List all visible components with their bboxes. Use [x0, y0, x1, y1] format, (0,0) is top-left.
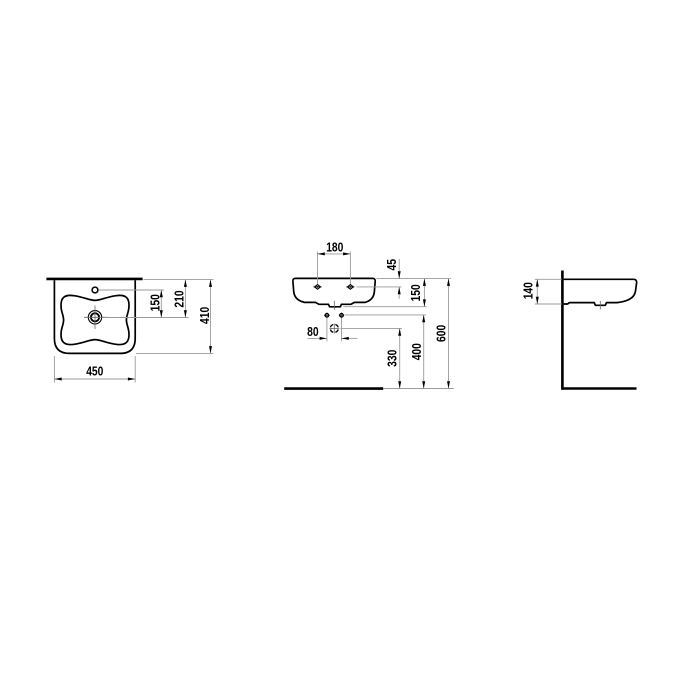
- svg-text:180: 180: [326, 240, 343, 255]
- svg-text:210: 210: [172, 290, 187, 307]
- svg-text:150: 150: [408, 284, 423, 301]
- svg-text:330: 330: [385, 350, 400, 367]
- svg-text:400: 400: [409, 343, 424, 360]
- svg-text:45: 45: [384, 259, 399, 271]
- svg-text:140: 140: [521, 282, 536, 299]
- svg-text:150: 150: [148, 294, 163, 311]
- svg-text:410: 410: [197, 307, 212, 324]
- svg-text:600: 600: [434, 325, 449, 342]
- svg-text:450: 450: [86, 364, 103, 379]
- svg-text:80: 80: [307, 324, 319, 339]
